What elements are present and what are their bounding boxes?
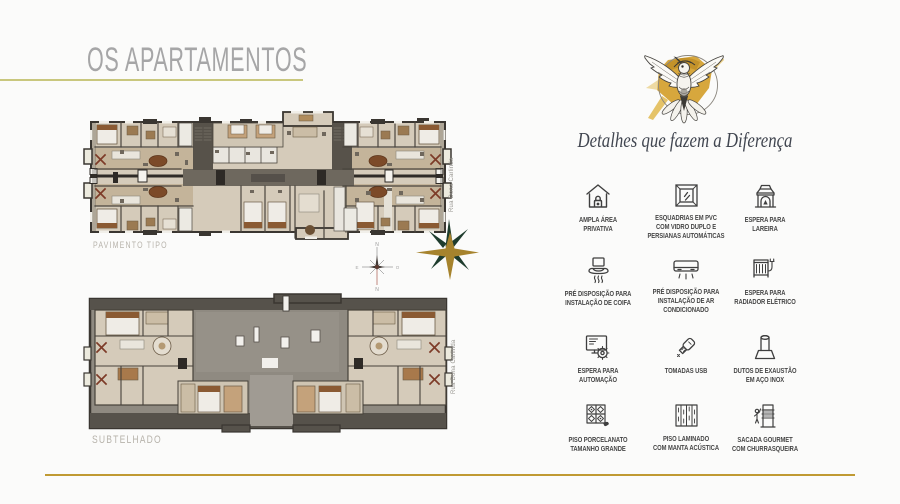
svg-text:E: E [355,265,358,270]
svg-text:O: O [396,265,400,270]
svg-text:N: N [375,287,379,293]
svg-text:N: N [375,242,379,248]
